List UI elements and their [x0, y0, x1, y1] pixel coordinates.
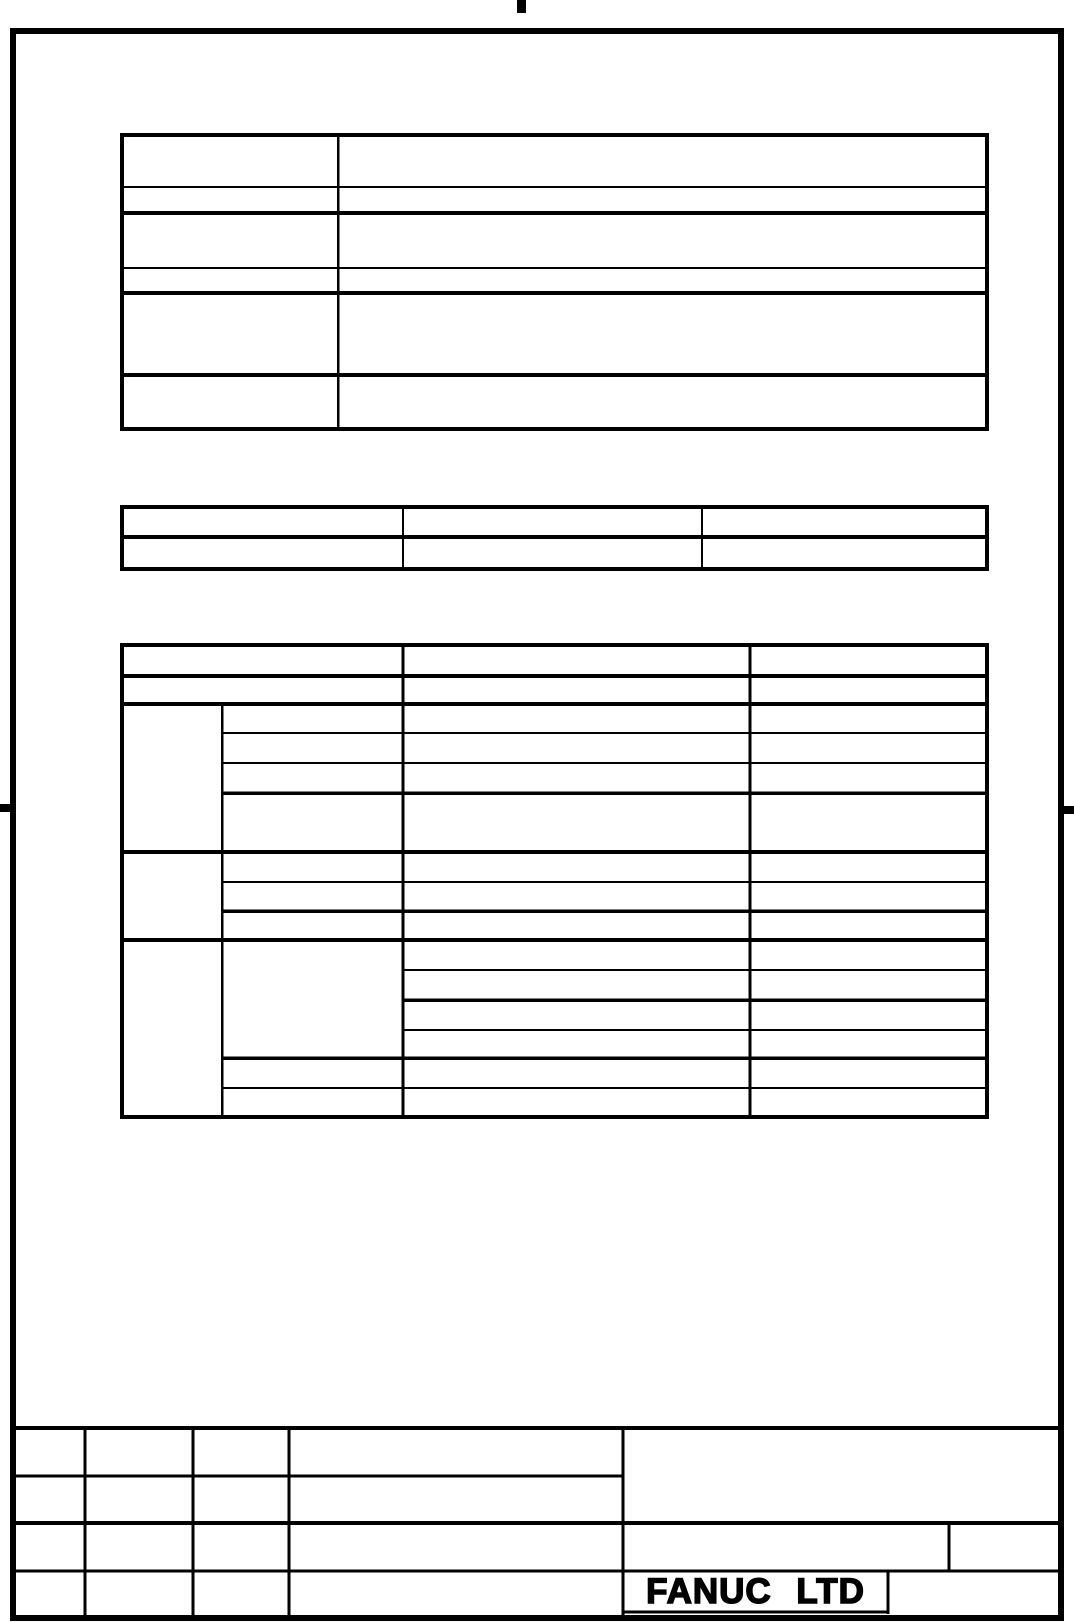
spec-table-upper	[120, 133, 989, 431]
fanuc-ltd-logo: FANUC LTD	[623, 1571, 888, 1612]
center-mark-right	[1064, 806, 1074, 814]
center-mark-top	[517, 0, 526, 13]
center-mark-left	[0, 804, 10, 812]
title-block	[10, 1428, 1064, 1618]
sheet-ruling	[0, 0, 1074, 1622]
spec-table-middle	[120, 505, 989, 571]
page-border	[13, 31, 1061, 1618]
spec-table-detail	[120, 643, 989, 1119]
drawing-sheet: FANUC LTD	[0, 0, 1074, 1622]
